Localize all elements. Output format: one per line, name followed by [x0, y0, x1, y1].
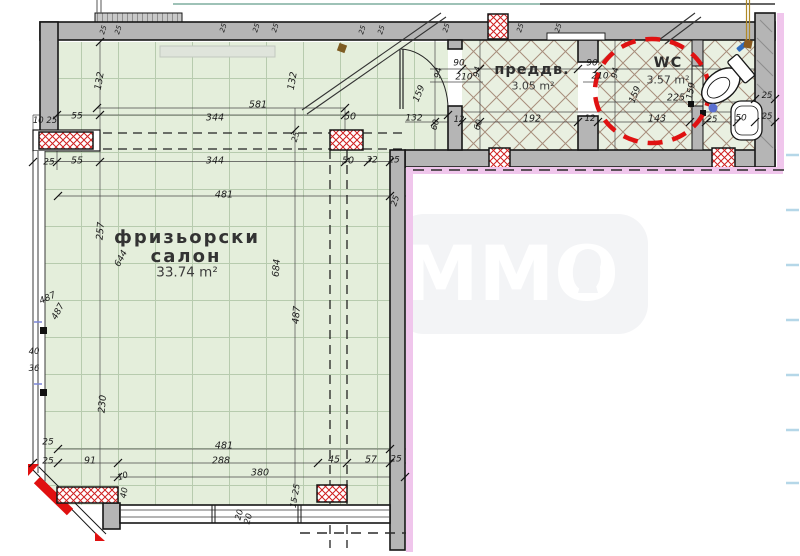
pipe-connector — [743, 39, 752, 48]
survey-dashes — [786, 155, 799, 483]
wall-outer-right — [755, 13, 775, 167]
wardrobe-niche — [160, 46, 275, 57]
window-marker — [40, 389, 47, 396]
wall-top-lip — [95, 13, 182, 22]
column-mid-top — [330, 130, 363, 150]
wall-niche — [547, 33, 605, 40]
sink — [731, 101, 762, 140]
salon-floor — [45, 42, 448, 505]
floor-plan-drawing: MMO — [0, 0, 800, 556]
wall-preddv-stub-top — [448, 40, 462, 49]
red-triangle-marker — [95, 532, 105, 541]
wall-preddv-wc-stub-bottom — [578, 116, 598, 150]
watermark: MMO — [394, 214, 648, 334]
left-step-window — [33, 130, 100, 151]
window-red-hatch-top-left — [39, 132, 93, 149]
left-window-band — [33, 151, 47, 505]
column-mid-bottom — [317, 485, 347, 502]
wall-top — [40, 22, 775, 40]
wall-preddv-wc-stub-top — [578, 40, 598, 62]
column-wc-wall-right — [712, 148, 735, 168]
window-bottom-left — [57, 487, 118, 503]
top-left-ticks — [97, 0, 101, 13]
wall-right-of-salon — [390, 150, 405, 550]
column-wc-wall-left — [489, 148, 510, 168]
column-top-wall — [488, 14, 508, 39]
bottom-window-band — [120, 505, 390, 523]
column-bottom-left — [103, 503, 120, 529]
window-marker — [40, 327, 47, 334]
drain-point — [709, 104, 718, 113]
preddv-floor — [462, 40, 578, 150]
floor-plan-canvas: MMO — [0, 0, 800, 556]
